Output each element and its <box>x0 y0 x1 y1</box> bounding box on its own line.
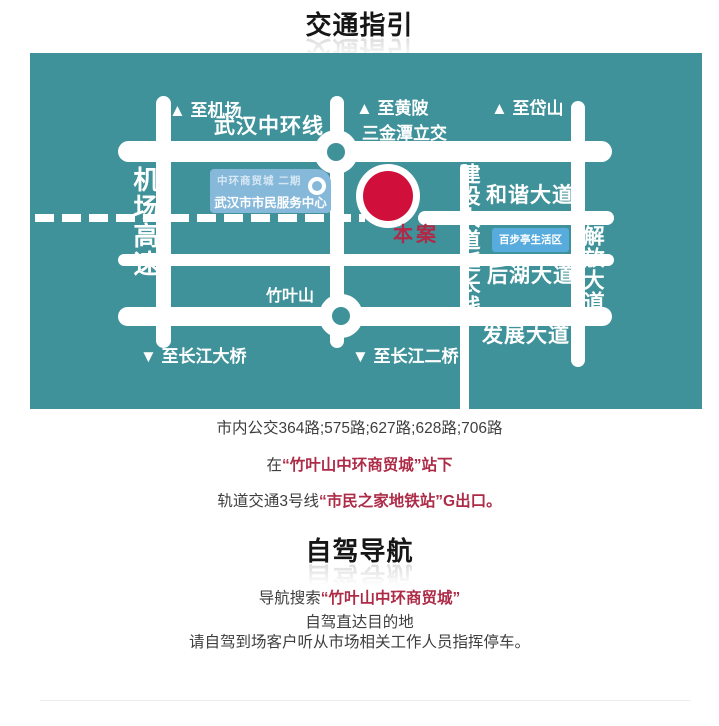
parking-note-value: 请自驾到场客户听从市场相关工作人员指挥停车。 <box>189 634 530 651</box>
bottom-divider <box>40 700 690 701</box>
label-to-huangpi: ▲ 至黄陂 <box>356 99 429 119</box>
site-marker-label: 本案 <box>393 224 439 247</box>
label-sanjintan-interchange: 三金潭立交 <box>362 124 447 144</box>
label-airport-expressway: 机场高速 <box>129 166 159 278</box>
nav-search-highlight: “竹叶山中环商贸城” <box>321 590 461 607</box>
metro-text: 轨道交通3号线“市民之家地铁站”G出口。 <box>0 489 719 511</box>
parking-note-text: 请自驾到场客户听从市场相关工作人员指挥停车。 <box>0 630 719 652</box>
direct-arrival-text: 自驾直达目的地 <box>0 610 719 632</box>
roundabout-hub <box>332 307 350 325</box>
site-marker-dot <box>363 171 413 221</box>
service-center-line2: 武汉市市民服务中心 <box>210 192 331 211</box>
bus-lines-text: 市内公交364路;575路;627路;628路;706路 <box>0 416 719 438</box>
road-dashed-hexie-west <box>35 214 365 222</box>
label-to-second-yangtze-bridge: ▼ 至长江二桥 <box>352 347 459 367</box>
label-wuhan-ring-road: 武汉中环线 <box>214 115 324 139</box>
bus-stop-highlight: “竹叶山中环商贸城”站下 <box>282 457 453 474</box>
direct-arrival-value: 自驾直达目的地 <box>305 614 414 631</box>
road-wuhan-ring <box>118 141 612 162</box>
zhuyeshan-roundabout <box>319 294 363 338</box>
baibuting-area-box: 百步亭生活区 <box>492 228 569 252</box>
label-jiefang-avenue: 解放大道 <box>580 225 604 313</box>
label-hexie-avenue: 和谐大道 <box>486 184 574 208</box>
nav-search-prefix: 导航搜索 <box>259 590 321 607</box>
transit-map-image: 本案 中环商贸城 二期 武汉市市民服务中心 百步亭生活区 ▲ 至机场 武汉中环线… <box>30 53 702 409</box>
label-jianshe-extension: 建设大道延长线 <box>456 163 480 317</box>
jiefang-arrow-icon: ▶ <box>602 256 610 268</box>
service-center-box: 中环商贸城 二期 武汉市市民服务中心 <box>210 169 331 213</box>
service-center-ring-icon <box>308 177 326 195</box>
label-houhu-avenue: 后湖大道 <box>487 264 575 288</box>
label-zhuyeshan: 竹叶山 <box>266 288 314 306</box>
bus-lines-value: 市内公交364路;575路;627路;628路;706路 <box>216 420 502 437</box>
metro-prefix: 轨道交通3号线 <box>217 493 319 510</box>
bus-stop-text: 在“竹叶山中环商贸城”站下 <box>0 453 719 475</box>
label-fazhan-avenue: 发展大道 <box>482 324 570 348</box>
metro-highlight: “市民之家地铁站”G出口。 <box>319 493 502 510</box>
roundabout-hub <box>327 143 345 161</box>
bus-stop-prefix: 在 <box>266 457 282 474</box>
site-marker-circle <box>356 164 420 228</box>
label-to-yangtze-bridge: ▼ 至长江大桥 <box>140 347 247 367</box>
label-to-daishan: ▲ 至岱山 <box>491 99 564 119</box>
nav-search-text: 导航搜索“竹叶山中环商贸城” <box>0 586 719 608</box>
